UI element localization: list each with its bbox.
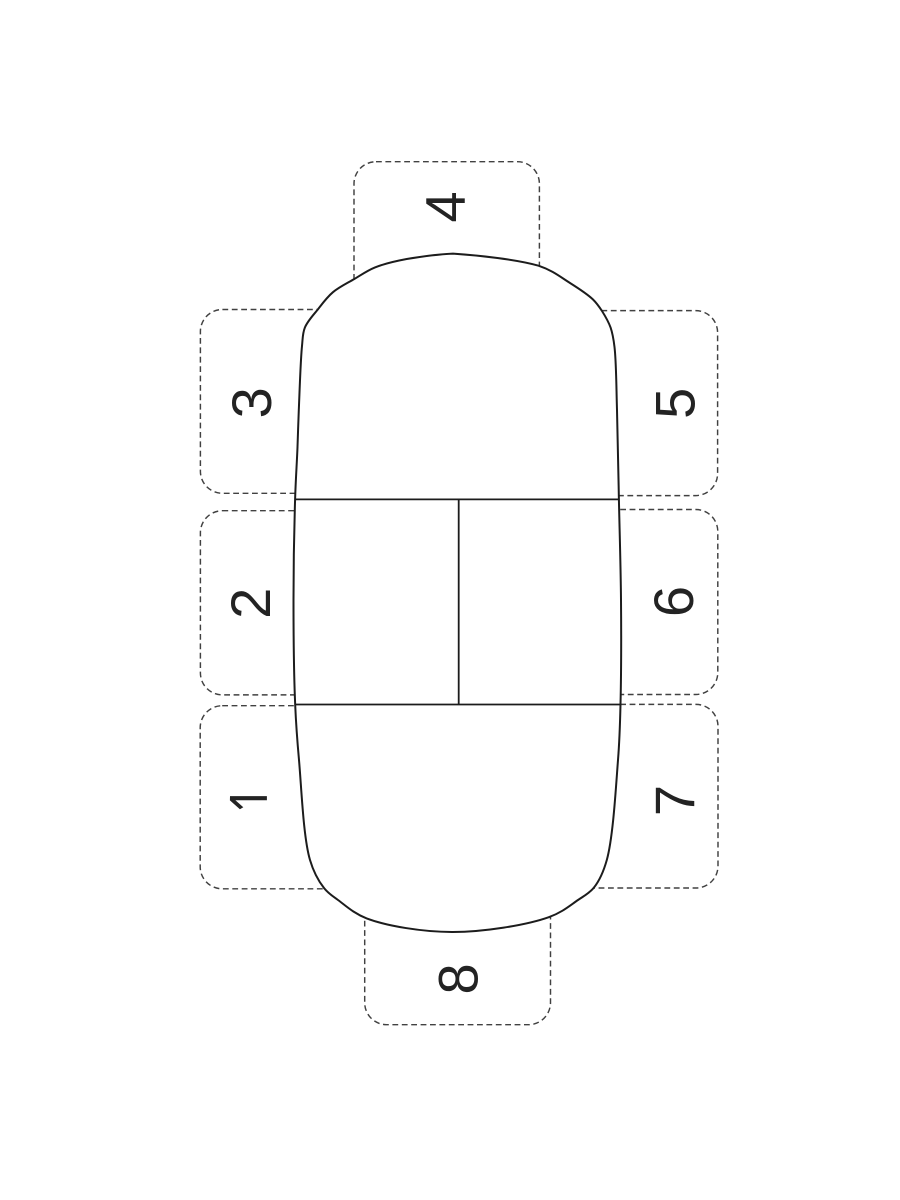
svg-text:2: 2: [219, 588, 282, 619]
svg-text:6: 6: [642, 586, 705, 617]
svg-text:8: 8: [426, 963, 489, 994]
svg-text:7: 7: [643, 785, 706, 816]
svg-text:4: 4: [413, 191, 476, 222]
svg-text:5: 5: [644, 388, 707, 419]
svg-text:3: 3: [220, 387, 283, 418]
